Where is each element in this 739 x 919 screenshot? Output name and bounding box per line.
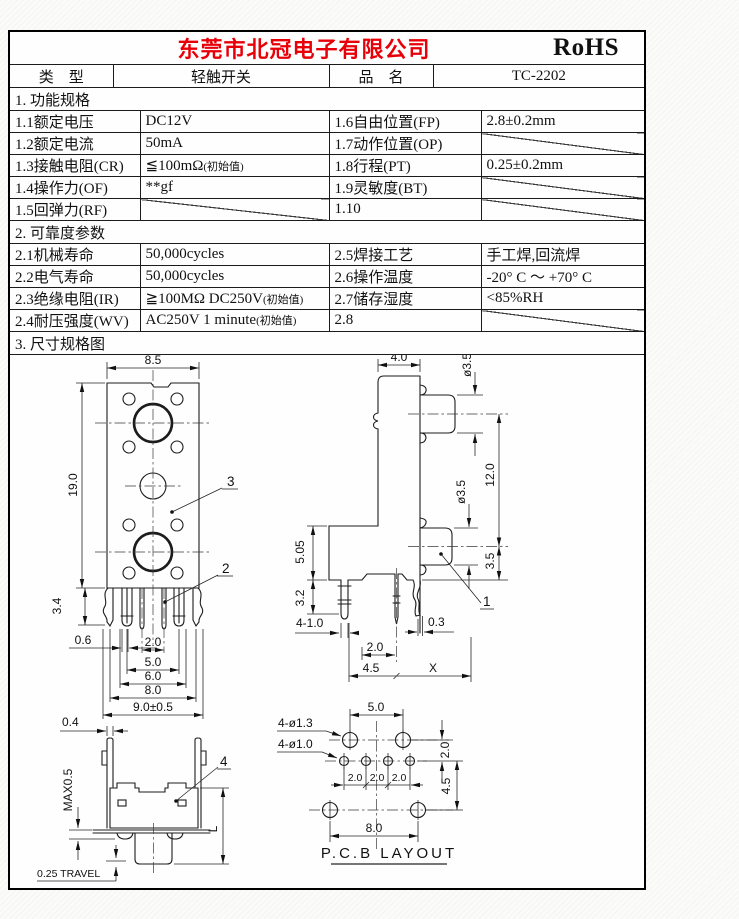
spec-label: 1.3接触电阻(CR) <box>9 155 140 177</box>
dim-side-l1: 5.05 <box>293 540 307 564</box>
label-pin-holes: 4-ø1.0 <box>278 737 313 751</box>
spec-value: ≦100mΩ(初始值) <box>140 155 329 177</box>
dim-front-height: 19.0 <box>66 473 80 497</box>
spec-label: 1.2额定电流 <box>9 133 140 155</box>
spec-label: 1.8行程(PT) <box>329 155 481 177</box>
initial-value-note: (初始值) <box>256 315 296 327</box>
dim-side-g3: 4.5 <box>363 661 380 675</box>
dim-stem-to-base: 3.5 <box>483 552 497 569</box>
spec-value-empty <box>140 199 329 221</box>
dim-side-x: X <box>429 661 437 675</box>
spec-label: 2.4耐压强度(WV) <box>9 310 140 332</box>
side-leg <box>338 580 351 619</box>
spec-label: 2.2电气寿命 <box>9 266 140 288</box>
dim-stem-span: 12.0 <box>483 463 497 487</box>
spec-value-empty <box>481 199 645 221</box>
spec-value: ≧100MΩ DC250V(初始值) <box>140 288 329 310</box>
spec-value: 2.8±0.2mm <box>481 111 645 133</box>
company-title: 东莞市北冠电子有限公司 <box>55 32 553 64</box>
drawing-row: 8.5 19.0 3.4 0.6 2.0 5.0 <box>9 355 645 890</box>
spec-row: 1.5回弹力(RF) 1.10 <box>9 199 645 221</box>
spec-row: 2.4耐压强度(WV) AC250V 1 minute(初始值) 2.8 <box>9 310 645 332</box>
label-mount-holes: 4-ø1.3 <box>278 716 313 730</box>
dim-pin-span: 6.0 <box>145 669 162 683</box>
spec-row: 2.2电气寿命 50,000cycles 2.6操作温度 -20° C ～ +7… <box>9 266 645 288</box>
dim-post-width: 0.4 <box>62 715 79 729</box>
spec-value: DC12V <box>140 111 329 133</box>
dim-bent-leg-width: 0.3 <box>428 615 445 629</box>
pcb-layout: 5.0 2.0 4.5 2.0 2.0 2.0 <box>277 700 463 864</box>
dim-pcb-top: 5.0 <box>368 700 385 714</box>
spec-label: 1.1额定电压 <box>9 111 140 133</box>
dim-pin-width: 0.6 <box>75 633 92 647</box>
spec-label: 2.8 <box>329 310 481 332</box>
spec-label: 2.6操作温度 <box>329 266 481 288</box>
spec-label: 1.6自由位置(FP) <box>329 111 481 133</box>
spec-value: 手工焊,回流焊 <box>481 244 645 266</box>
dim-leg-callout: 4-1.0 <box>296 616 324 630</box>
name-label: 品 名 <box>329 65 433 88</box>
pin-4 <box>173 588 185 626</box>
spec-label: 1.10 <box>329 199 481 221</box>
spec-value-empty <box>481 133 645 155</box>
title-row: 东莞市北冠电子有限公司 RoHS <box>9 31 645 65</box>
left-flange-leg <box>103 588 113 626</box>
spec-value: 0.25±0.2mm <box>481 155 645 177</box>
spec-row: 1.3接触电阻(CR) ≦100mΩ(初始值) 1.8行程(PT) 0.25±0… <box>9 155 645 177</box>
dimension-drawings: 8.5 19.0 3.4 0.6 2.0 5.0 <box>15 355 645 888</box>
dim-pin-pitch: 2.0 <box>145 635 162 649</box>
dim-pcb-pitch: 2.0 <box>392 772 407 784</box>
spec-value-empty <box>481 310 645 332</box>
side-view: 4.0 ø3.5 12.0 3.5 ø3.5 5.05 <box>293 355 508 682</box>
rohs-mark: RoHS <box>553 34 639 62</box>
bracket-view: 0.4 MAX0.5 L 4 0.25 TRAVEL <box>37 715 231 881</box>
dim-overall-width: 9.0±0.5 <box>133 700 173 714</box>
spec-value: 50mA <box>140 133 329 155</box>
front-view: 8.5 19.0 3.4 0.6 2.0 5.0 <box>50 355 238 719</box>
balloon-1: 1 <box>483 594 491 609</box>
spec-label: 1.5回弹力(RF) <box>9 199 140 221</box>
balloon-3: 3 <box>227 474 235 489</box>
name-value: TC-2202 <box>433 65 645 88</box>
scanned-spec-sheet: { "header": { "company": "东莞市北冠电子有限公司", … <box>0 0 739 919</box>
spec-label: 1.4操作力(OF) <box>9 177 140 199</box>
spec-value: -20° C ～ +70° C <box>481 266 645 288</box>
spec-row: 2.1机械寿命 50,000cycles 2.5焊接工艺 手工焊,回流焊 <box>9 244 645 266</box>
dim-top-stem-dia: ø3.5 <box>460 355 474 377</box>
type-label: 类 型 <box>9 65 113 88</box>
spec-label: 2.1机械寿命 <box>9 244 140 266</box>
dim-length-l: L <box>206 825 220 832</box>
section3-header: 3. 尺寸规格图 <box>9 332 645 355</box>
dim-travel: 0.25 TRAVEL <box>37 868 100 880</box>
dim-side-g2: 2.0 <box>367 640 384 654</box>
dim-pcb-bottom: 8.0 <box>366 821 383 835</box>
spec-value: <85%RH <box>481 288 645 310</box>
dim-outer-pin-pitch: 5.0 <box>145 655 162 669</box>
section2-header: 2. 可靠度参数 <box>9 221 645 244</box>
spec-row: 1.2额定电流 50mA 1.7动作位置(OP) <box>9 133 645 155</box>
spec-value: **gf <box>140 177 329 199</box>
spec-value: 50,000cycles <box>140 266 329 288</box>
type-row: 类 型 轻触开关 品 名 TC-2202 <box>9 65 645 88</box>
balloon-4: 4 <box>220 754 228 769</box>
spec-label: 2.3绝缘电阻(IR) <box>9 288 140 310</box>
spec-row: 2.3绝缘电阻(IR) ≧100MΩ DC250V(初始值) 2.7储存湿度 <… <box>9 288 645 310</box>
dim-front-width: 8.5 <box>145 355 162 367</box>
spec-row: 1.1额定电压 DC12V 1.6自由位置(FP) 2.8±0.2mm <box>9 111 645 133</box>
dim-body-span: 8.0 <box>145 683 162 697</box>
spec-value: 50,000cycles <box>140 244 329 266</box>
balloon-2: 2 <box>222 561 230 576</box>
dim-bottom-stem-dia: ø3.5 <box>454 480 468 504</box>
dim-pcb-pitch: 2.0 <box>348 772 363 784</box>
dim-side-width: 4.0 <box>391 355 408 364</box>
dim-max-standoff: MAX0.5 <box>61 768 75 811</box>
side-bent-leg <box>413 580 420 616</box>
spec-value: AC250V 1 minute(初始值) <box>140 310 329 332</box>
dim-side-l2: 3.2 <box>293 589 307 606</box>
initial-value-note: (初始值) <box>203 161 243 173</box>
type-value: 轻触开关 <box>113 65 329 88</box>
right-flange-leg <box>193 588 203 626</box>
initial-value-note: (初始值) <box>263 294 303 306</box>
section1-header: 1. 功能规格 <box>9 88 645 111</box>
spec-label: 2.5焊接工艺 <box>329 244 481 266</box>
spec-label: 2.7储存湿度 <box>329 288 481 310</box>
pin-1 <box>121 588 133 626</box>
dim-pcb-pitch: 2.0 <box>370 772 385 784</box>
dim-pcb-r1: 2.0 <box>438 741 452 758</box>
spec-label: 1.7动作位置(OP) <box>329 133 481 155</box>
pcb-layout-title: P.C.B LAYOUT <box>321 845 457 862</box>
spec-sheet-table: 东莞市北冠电子有限公司 RoHS 类 型 轻触开关 品 名 TC-2202 1.… <box>8 30 646 890</box>
spec-value-empty <box>481 177 645 199</box>
spec-row: 1.4操作力(OF) **gf 1.9灵敏度(BT) <box>9 177 645 199</box>
spec-label: 1.9灵敏度(BT) <box>329 177 481 199</box>
dim-pcb-r2: 4.5 <box>439 777 453 794</box>
dim-pin-height: 3.4 <box>50 597 64 614</box>
